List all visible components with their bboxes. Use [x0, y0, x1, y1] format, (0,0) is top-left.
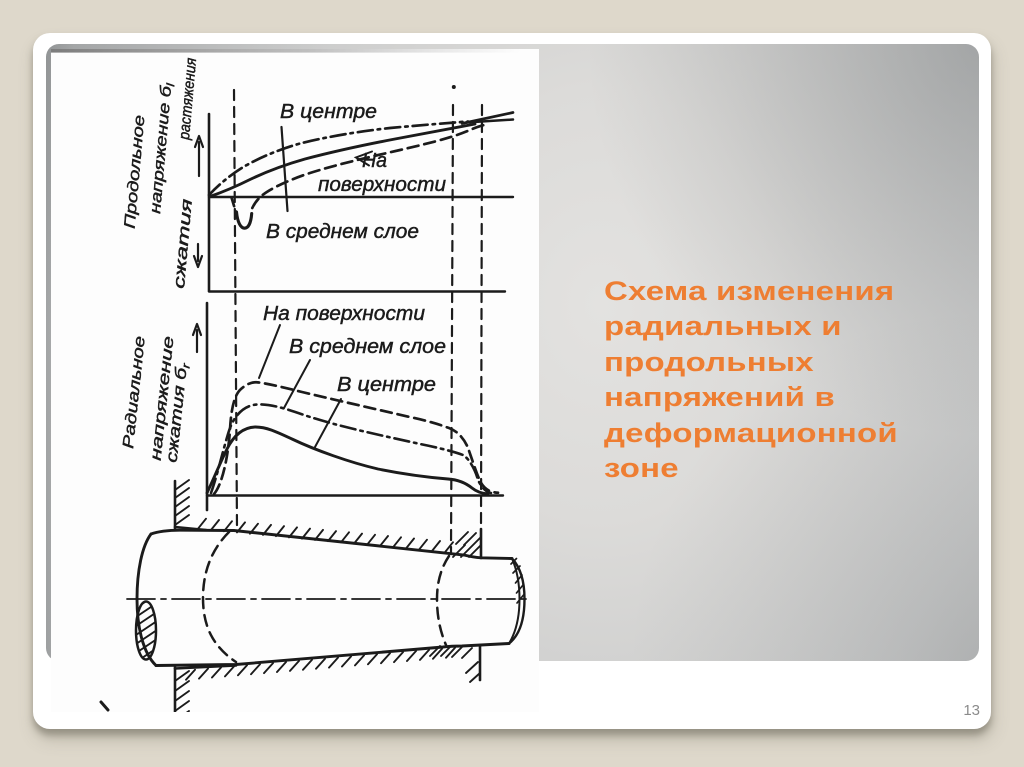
svg-text:Продольное: Продольное: [122, 114, 149, 230]
svg-text:растяжения: растяжения: [176, 57, 200, 141]
svg-text:В центре: В центре: [280, 101, 377, 123]
svg-text:поверхности: поверхности: [318, 174, 446, 196]
svg-text:сжатия: сжатия: [171, 198, 196, 290]
svg-text:В центре: В центре: [337, 374, 436, 396]
svg-text:Радиальное: Радиальное: [120, 335, 149, 450]
svg-text:На поверхности: На поверхности: [263, 303, 425, 325]
svg-text:напряжение бl: напряжение бl: [147, 82, 177, 215]
svg-text:В среднем слое: В среднем слое: [289, 336, 446, 358]
svg-text:На: На: [362, 150, 387, 172]
svg-text:В среднем слое: В среднем слое: [266, 221, 419, 243]
